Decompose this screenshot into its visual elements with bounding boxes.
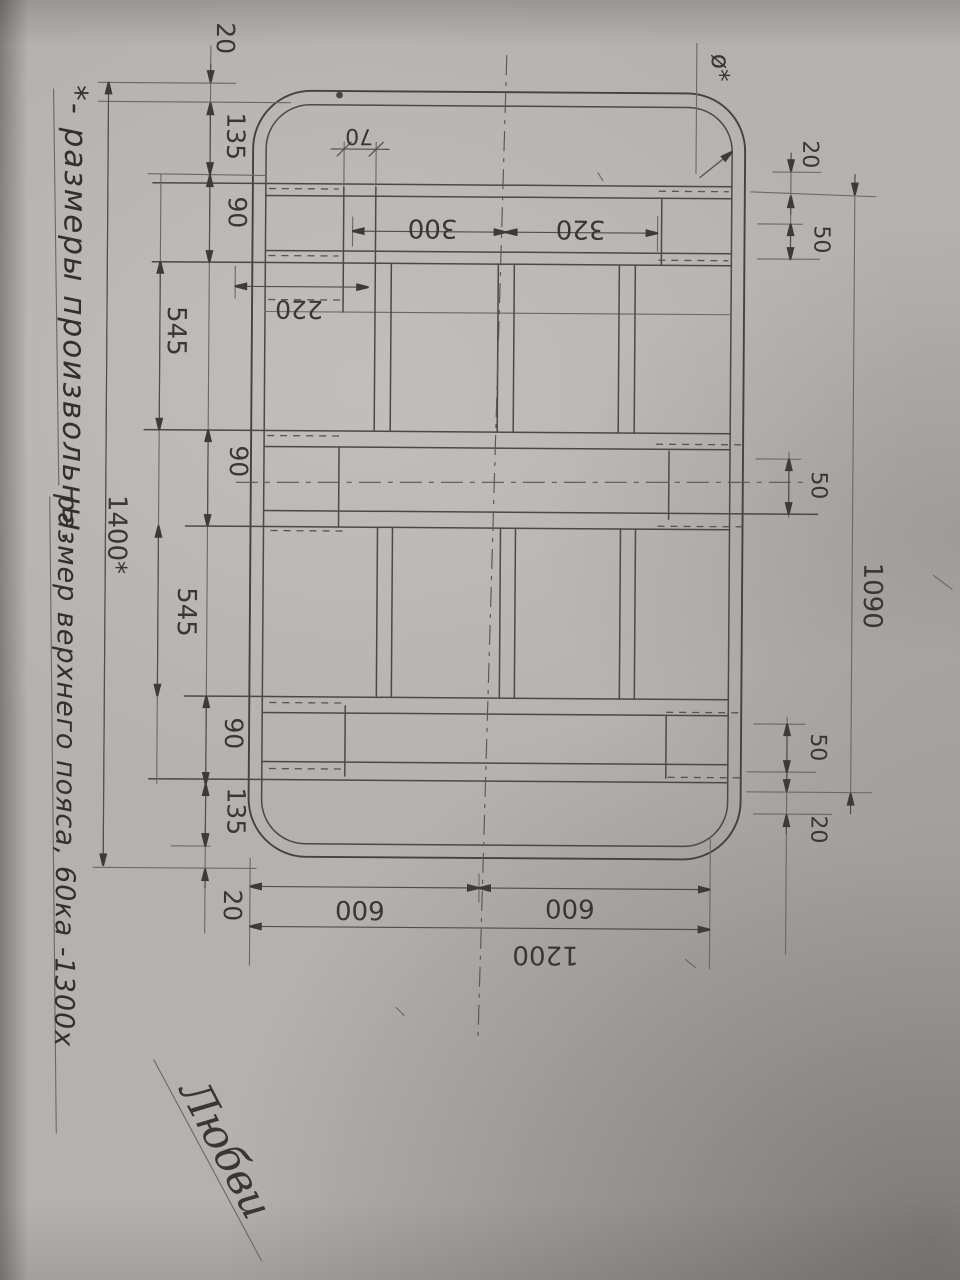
dim-stringer-spacing-1: 300 xyxy=(408,212,458,242)
signature: Любви xyxy=(169,1070,282,1227)
center-lines xyxy=(232,53,812,1042)
corner-radius-label: ø* xyxy=(706,54,735,82)
cross-members xyxy=(142,183,820,784)
dimension-labels: 20 135 90 545 90 545 90 135 20 1400* 109… xyxy=(98,21,891,971)
dim-left-545-upper: 545 xyxy=(161,306,191,356)
dim-overall-width: 1090 xyxy=(857,563,887,629)
corner-leader-arrow xyxy=(700,152,732,178)
pencil-smudge xyxy=(336,92,343,99)
dim-left-90-mid: 90 xyxy=(224,445,253,477)
photographed-sketch-page: { "colors": { "paper": "#b5b1ae", "penci… xyxy=(0,0,960,1280)
handwritten-note: *- размеры произвольны. размер верхнего … xyxy=(45,85,93,1133)
dim-stringer-width: 70 xyxy=(345,123,373,148)
hidden-lines xyxy=(265,189,748,778)
dim-stringer-spacing-2: 320 xyxy=(556,214,606,244)
dim-overall-length: 1400* xyxy=(101,495,132,574)
dim-first-stringer-offset: 220 xyxy=(275,295,323,324)
frame-outline xyxy=(248,90,745,859)
dim-left-545-lower: 545 xyxy=(171,587,201,637)
note-line-1: *- размеры произвольны. xyxy=(54,85,93,545)
dim-bottom-600-right: 600 xyxy=(545,892,595,922)
dim-left-135-bottom: 135 xyxy=(221,787,250,835)
dim-right-20-top: 20 xyxy=(797,140,822,168)
dim-bottom-overall: 1200 xyxy=(512,939,578,969)
note-line-2: размер верхнего пояса, 60ка -1300х xyxy=(48,493,83,1047)
signature-block: Любви xyxy=(152,1060,283,1261)
dim-left-20-top: 20 xyxy=(211,22,240,54)
dim-right-50-mid: 50 xyxy=(806,471,831,499)
dim-right-50-bottom: 50 xyxy=(805,733,830,761)
dim-bottom-600-left: 600 xyxy=(335,894,385,924)
dim-right-50-top: 50 xyxy=(808,225,833,253)
pencil-drawing: 20 135 90 545 90 545 90 135 20 1400* 109… xyxy=(0,0,960,1280)
dim-left-135-top: 135 xyxy=(221,112,250,160)
dim-left-90-top: 90 xyxy=(223,196,252,228)
dim-left-20-bottom: 20 xyxy=(218,889,247,921)
dim-left-90-bottom: 90 xyxy=(219,717,248,749)
dim-right-20-bottom: 20 xyxy=(805,815,830,843)
